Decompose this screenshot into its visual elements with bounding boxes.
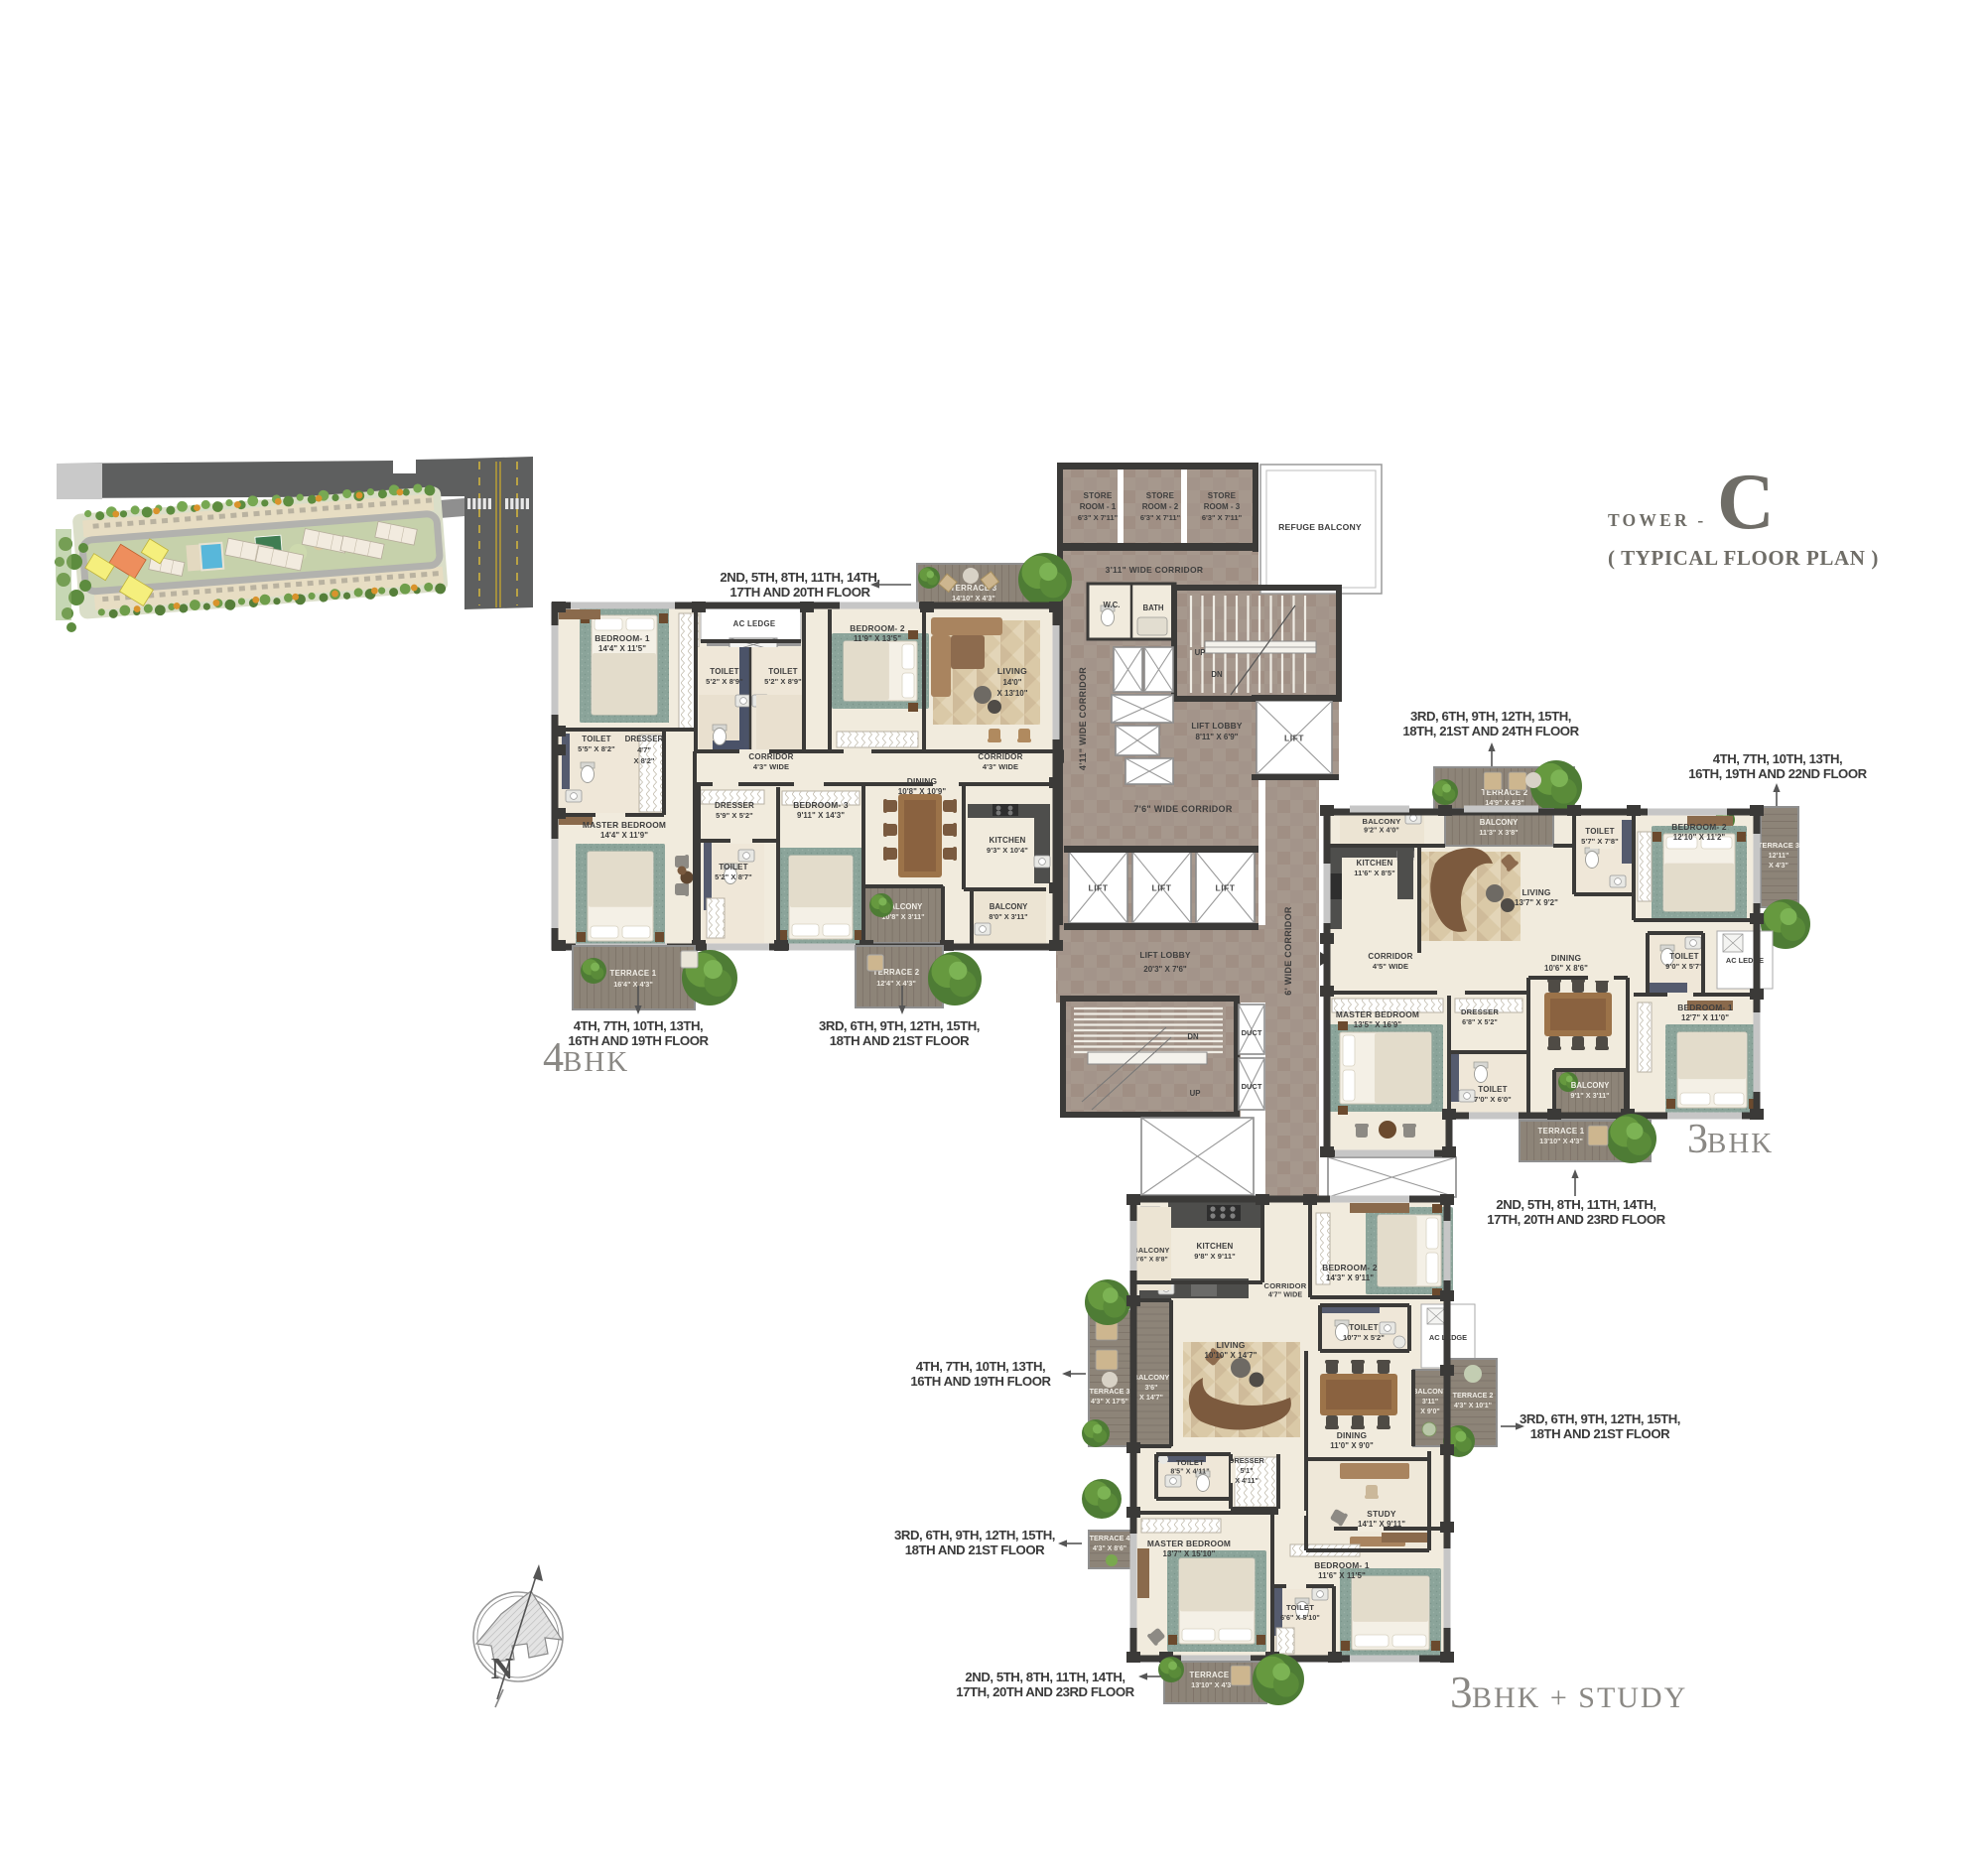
svg-text:TOILET: TOILET [1669,952,1699,961]
svg-text:DINING: DINING [1337,1430,1368,1440]
svg-text:BEDROOM- 2: BEDROOM- 2 [850,623,905,633]
svg-text:BHK: BHK [1707,1128,1774,1159]
svg-text:17TH, 20TH AND 23RD FLOOR: 17TH, 20TH AND 23RD FLOOR [1487,1212,1665,1227]
svg-text:6'3" X 7'11": 6'3" X 7'11" [1202,513,1243,522]
svg-text:5'2" X 8'9": 5'2" X 8'9" [706,677,743,686]
svg-text:2ND, 5TH, 8TH, 11TH, 14TH,: 2ND, 5TH, 8TH, 11TH, 14TH, [1496,1197,1655,1212]
svg-text:MASTER BEDROOM: MASTER BEDROOM [1147,1539,1231,1548]
svg-text:6'3" X 7'11": 6'3" X 7'11" [1140,513,1181,522]
svg-text:TOILET: TOILET [719,863,748,871]
svg-text:DINING: DINING [1551,953,1582,963]
svg-text:STORE: STORE [1208,491,1237,500]
svg-text:2ND, 5TH, 8TH, 11TH, 14TH,: 2ND, 5TH, 8TH, 11TH, 14TH, [965,1670,1125,1684]
svg-text:4'3" X 10'1": 4'3" X 10'1" [1454,1403,1492,1409]
svg-text:DRESSER: DRESSER [1229,1456,1264,1465]
svg-text:BEDROOM- 2: BEDROOM- 2 [1322,1263,1378,1273]
svg-text:BEDROOM- 1: BEDROOM- 1 [595,633,650,643]
svg-text:7'0" X 6'0": 7'0" X 6'0" [1474,1095,1512,1104]
svg-text:LIFT: LIFT [1152,883,1172,893]
svg-text:5'1": 5'1" [1240,1466,1253,1475]
svg-text:LIVING: LIVING [1216,1340,1245,1350]
svg-text:9'3" X 10'4": 9'3" X 10'4" [987,846,1028,855]
svg-text:17TH AND 20TH FLOOR: 17TH AND 20TH FLOOR [729,585,870,600]
svg-text:TOILET: TOILET [710,667,739,676]
svg-text:TOILET: TOILET [1176,1458,1204,1467]
svg-text:TOILET: TOILET [1585,827,1615,836]
svg-text:MASTER BEDROOM: MASTER BEDROOM [583,820,666,830]
svg-text:20'3" X 7'6": 20'3" X 7'6" [1143,965,1187,974]
svg-text:AC LEDGE: AC LEDGE [733,619,776,628]
svg-text:CORRIDOR: CORRIDOR [1264,1281,1307,1290]
svg-text:TERRACE 3: TERRACE 3 [1758,841,1799,850]
svg-text:3RD, 6TH, 9TH, 12TH, 15TH,: 3RD, 6TH, 9TH, 12TH, 15TH, [819,1018,980,1033]
svg-text:13'5" X 16'9": 13'5" X 16'9" [1354,1020,1402,1029]
svg-text:11'9" X 13'5": 11'9" X 13'5" [854,634,901,643]
svg-text:13'10" X 4'3": 13'10" X 4'3" [1539,1137,1583,1145]
svg-text:5'5" X 8'2": 5'5" X 8'2" [578,744,615,753]
svg-text:UP: UP [1190,1089,1201,1098]
svg-text:13'7" X 15'10": 13'7" X 15'10" [1162,1549,1215,1558]
svg-text:LIFT: LIFT [1216,883,1236,893]
svg-text:STORE: STORE [1084,491,1113,500]
svg-text:4'3" X 17'5": 4'3" X 17'5" [1091,1399,1128,1406]
svg-text:TOILET: TOILET [582,735,611,743]
svg-text:8'11" X 6'9": 8'11" X 6'9" [1196,733,1239,741]
svg-text:6'6" X 5'10": 6'6" X 5'10" [1280,1614,1320,1622]
svg-text:12'7" X 11'0": 12'7" X 11'0" [1681,1013,1729,1022]
svg-text:3RD, 6TH, 9TH, 12TH, 15TH,: 3RD, 6TH, 9TH, 12TH, 15TH, [1520,1411,1680,1426]
svg-text:DINING: DINING [907,776,938,786]
svg-text:4TH, 7TH, 10TH, 13TH,: 4TH, 7TH, 10TH, 13TH, [574,1018,704,1033]
svg-text:LIFT LOBBY: LIFT LOBBY [1191,721,1243,731]
svg-text:X 8'2": X 8'2" [633,756,654,765]
svg-text:5'9" X 5'2": 5'9" X 5'2" [716,811,753,820]
svg-text:4TH, 7TH, 10TH, 13TH,: 4TH, 7TH, 10TH, 13TH, [1713,751,1843,766]
svg-text:5'2" X 8'7": 5'2" X 8'7" [715,872,752,881]
svg-text:6'8" X 5'2": 6'8" X 5'2" [1462,1018,1498,1026]
svg-text:DUCT: DUCT [1242,1028,1262,1037]
svg-text:9'2" X 4'0": 9'2" X 4'0" [1364,827,1399,835]
svg-text:TERRACE 3: TERRACE 3 [1090,1387,1130,1396]
svg-text:11'6" X 8'5": 11'6" X 8'5" [1354,869,1395,877]
svg-text:KITCHEN: KITCHEN [1197,1242,1234,1251]
svg-text:3'11": 3'11" [1422,1399,1438,1406]
svg-text:TOILET: TOILET [1349,1323,1379,1332]
svg-text:LIFT: LIFT [1089,883,1109,893]
svg-text:KITCHEN: KITCHEN [1357,859,1393,868]
svg-text:3'11" WIDE CORRIDOR: 3'11" WIDE CORRIDOR [1106,565,1204,575]
svg-text:12'4" X 4'3": 12'4" X 4'3" [876,979,916,988]
svg-text:X 9'0": X 9'0" [1420,1408,1439,1415]
svg-text:3'6" X 8'8": 3'6" X 8'8" [1134,1257,1168,1264]
svg-text:3RD, 6TH, 9TH, 12TH, 15TH,: 3RD, 6TH, 9TH, 12TH, 15TH, [894,1528,1055,1542]
svg-text:9'1" X 3'11": 9'1" X 3'11" [1570,1091,1609,1100]
svg-text:4'11" WIDE CORRIDOR: 4'11" WIDE CORRIDOR [1078,667,1088,770]
svg-text:BALCONY: BALCONY [1412,1387,1448,1396]
svg-text:14'10" X 4'3": 14'10" X 4'3" [952,594,995,603]
svg-text:X 4'3": X 4'3" [1769,861,1788,870]
svg-text:4'3" WIDE: 4'3" WIDE [753,762,789,771]
svg-text:4: 4 [543,1035,564,1081]
svg-text:BALCONY: BALCONY [990,902,1028,911]
svg-text:MASTER BEDROOM: MASTER BEDROOM [1336,1009,1419,1019]
svg-text:BHK + STUDY: BHK + STUDY [1472,1681,1687,1714]
svg-text:TERRACE 4: TERRACE 4 [1090,1534,1130,1542]
svg-text:DRESSER: DRESSER [625,735,664,743]
svg-text:8'0" X 3'11": 8'0" X 3'11" [989,912,1027,921]
svg-text:10'7" X 5'2": 10'7" X 5'2" [1343,1333,1385,1342]
svg-text:3'6": 3'6" [1144,1383,1157,1392]
svg-text:8'5" X 4'11": 8'5" X 4'11" [1170,1468,1209,1476]
svg-text:BALCONY: BALCONY [1363,817,1401,826]
svg-text:CORRIDOR: CORRIDOR [978,752,1022,761]
svg-text:LIFT LOBBY: LIFT LOBBY [1139,950,1191,960]
svg-text:BALCONY: BALCONY [1480,818,1519,827]
svg-text:N: N [491,1651,513,1685]
svg-text:STUDY: STUDY [1367,1509,1396,1519]
svg-text:13'10" X 4'3": 13'10" X 4'3" [1191,1680,1235,1689]
svg-text:10'8" X 10'9": 10'8" X 10'9" [898,787,947,796]
svg-text:LIFT: LIFT [1284,734,1304,743]
svg-text:3RD, 6TH, 9TH, 12TH, 15TH,: 3RD, 6TH, 9TH, 12TH, 15TH, [1410,709,1571,724]
svg-text:BALCONY: BALCONY [1133,1373,1170,1382]
svg-text:ROOM - 1: ROOM - 1 [1080,502,1117,511]
svg-text:BEDROOM- 1: BEDROOM- 1 [1677,1003,1733,1012]
svg-text:4'7": 4'7" [637,745,651,754]
svg-text:14'1" X 9'11": 14'1" X 9'11" [1358,1520,1405,1529]
svg-text:UP: UP [1195,648,1206,657]
svg-text:BEDROOM- 3: BEDROOM- 3 [793,800,849,810]
svg-text:4'3" X 8'6": 4'3" X 8'6" [1093,1545,1126,1552]
svg-text:18TH AND 21ST FLOOR: 18TH AND 21ST FLOOR [1530,1426,1670,1441]
svg-text:7'6" WIDE CORRIDOR: 7'6" WIDE CORRIDOR [1133,804,1233,814]
svg-text:14'4" X 11'9": 14'4" X 11'9" [600,831,648,840]
svg-text:( TYPICAL FLOOR PLAN ): ( TYPICAL FLOOR PLAN ) [1608,546,1879,570]
svg-text:TERRACE 1: TERRACE 1 [1190,1671,1237,1679]
svg-text:6'3" X 7'11": 6'3" X 7'11" [1078,513,1119,522]
svg-text:BALCONY: BALCONY [1133,1246,1170,1255]
svg-text:X 13'10": X 13'10" [996,689,1027,698]
svg-text:9'11" X 14'3": 9'11" X 14'3" [797,811,845,820]
svg-text:DN: DN [1187,1032,1199,1041]
svg-text:STORE: STORE [1146,491,1175,500]
svg-text:BALCONY: BALCONY [1571,1081,1610,1090]
svg-text:TERRACE 1: TERRACE 1 [610,969,657,978]
svg-text:18TH AND 21ST FLOOR: 18TH AND 21ST FLOOR [830,1033,970,1048]
svg-text:11'3" X 3'8": 11'3" X 3'8" [1479,828,1518,837]
svg-text:17TH, 20TH AND 23RD FLOOR: 17TH, 20TH AND 23RD FLOOR [956,1684,1134,1699]
svg-text:6' WIDE CORRIDOR: 6' WIDE CORRIDOR [1283,906,1293,996]
svg-text:TOILET: TOILET [768,667,798,676]
svg-text:LIVING: LIVING [1522,887,1550,897]
svg-text:11'6" X 11'5": 11'6" X 11'5" [1318,1571,1366,1580]
svg-text:14'4" X 11'5": 14'4" X 11'5" [598,644,646,653]
svg-text:16TH AND 19TH FLOOR: 16TH AND 19TH FLOOR [910,1374,1051,1389]
svg-text:C: C [1717,459,1775,546]
svg-text:3: 3 [1687,1117,1708,1162]
svg-text:LIVING: LIVING [997,666,1027,676]
svg-text:TOWER -: TOWER - [1608,510,1706,530]
svg-text:CORRIDOR: CORRIDOR [748,752,793,761]
svg-text:CORRIDOR: CORRIDOR [1368,952,1412,961]
svg-text:TOILET: TOILET [1478,1085,1508,1094]
svg-text:BEDROOM- 2: BEDROOM- 2 [1671,822,1727,832]
svg-text:18TH, 21ST AND 24TH FLOOR: 18TH, 21ST AND 24TH FLOOR [1402,724,1579,738]
svg-text:10'6" X 8'6": 10'6" X 8'6" [1544,964,1588,973]
svg-text:ROOM - 3: ROOM - 3 [1204,502,1241,511]
svg-text:13'7" X 9'2": 13'7" X 9'2" [1515,898,1558,907]
svg-text:ROOM - 2: ROOM - 2 [1142,502,1179,511]
svg-text:DRESSER: DRESSER [715,801,754,810]
svg-text:DN: DN [1211,670,1223,679]
svg-text:X 4'11": X 4'11" [1235,1476,1258,1485]
svg-text:4'7" WIDE: 4'7" WIDE [1268,1291,1303,1299]
svg-text:DRESSER: DRESSER [1461,1007,1499,1016]
svg-text:12'11": 12'11" [1769,851,1789,860]
svg-text:TERRACE 1: TERRACE 1 [1538,1127,1585,1136]
svg-text:BATH: BATH [1142,603,1163,612]
svg-text:12'10" X 11'2": 12'10" X 11'2" [1673,833,1726,842]
svg-text:4'3" WIDE: 4'3" WIDE [983,762,1018,771]
svg-text:4TH, 7TH, 10TH, 13TH,: 4TH, 7TH, 10TH, 13TH, [916,1359,1046,1374]
svg-text:BHK: BHK [563,1046,629,1078]
svg-text:10'10" X 14'7": 10'10" X 14'7" [1204,1351,1257,1360]
svg-text:TOILET: TOILET [1286,1603,1314,1612]
svg-text:16'4" X 4'3": 16'4" X 4'3" [613,980,653,989]
svg-text:3: 3 [1450,1668,1473,1717]
svg-text:9'0" X 5'7": 9'0" X 5'7" [1665,962,1703,971]
svg-text:4'5" WIDE: 4'5" WIDE [1373,962,1408,971]
svg-text:KITCHEN: KITCHEN [990,836,1026,845]
svg-text:DUCT: DUCT [1242,1082,1262,1091]
svg-text:5'7" X 7'8": 5'7" X 7'8" [1581,837,1619,846]
svg-text:TERRACE 2: TERRACE 2 [1453,1391,1494,1400]
svg-text:X 14'7": X 14'7" [1139,1393,1163,1402]
svg-text:5'2" X 8'9": 5'2" X 8'9" [764,677,802,686]
svg-text:2ND, 5TH, 8TH, 11TH, 14TH,: 2ND, 5TH, 8TH, 11TH, 14TH, [720,570,879,585]
svg-text:16TH, 19TH AND 22ND FLOOR: 16TH, 19TH AND 22ND FLOOR [1688,766,1867,781]
svg-text:14'0": 14'0" [1002,678,1021,687]
svg-text:9'8" X 9'11": 9'8" X 9'11" [1194,1252,1236,1261]
svg-text:14'3" X 9'11": 14'3" X 9'11" [1326,1273,1374,1282]
svg-text:W.C.: W.C. [1104,601,1121,609]
svg-text:18TH AND 21ST FLOOR: 18TH AND 21ST FLOOR [905,1542,1045,1557]
svg-text:11'0" X 9'0": 11'0" X 9'0" [1330,1441,1374,1450]
svg-text:REFUGE BALCONY: REFUGE BALCONY [1278,522,1362,532]
svg-text:BEDROOM- 1: BEDROOM- 1 [1314,1560,1370,1570]
